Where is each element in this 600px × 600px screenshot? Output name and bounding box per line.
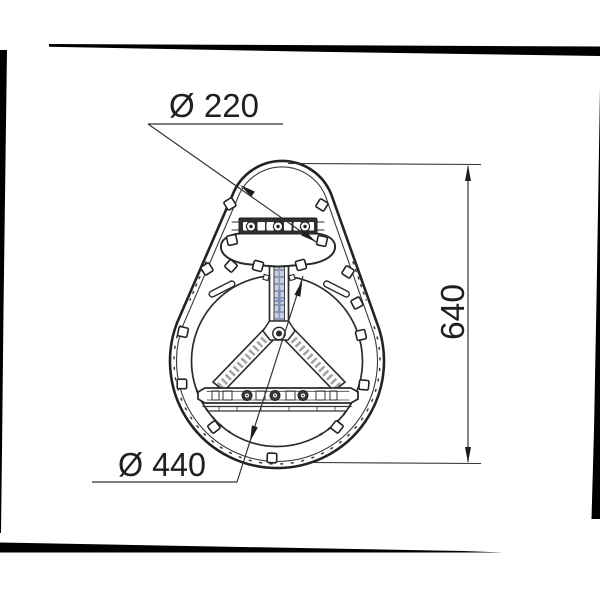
scan-artifact-bottom — [0, 543, 503, 553]
dim-440-label: Ø 440 — [118, 446, 206, 483]
stem-notch-left — [263, 274, 269, 280]
spoke-junction — [263, 321, 295, 340]
upper-crossbar — [232, 218, 324, 234]
dim-640-arrow-top — [465, 165, 471, 181]
bottom-crossbar — [198, 388, 358, 411]
stem-notch-right — [289, 274, 295, 280]
part-view — [170, 161, 384, 468]
drawing-canvas: Ø 220 Ø 440 640 — [0, 0, 600, 600]
scan-artifact-top — [49, 44, 600, 56]
dim-440-arrow-upper — [294, 281, 302, 297]
scanned-drawing-page: Ø 220 Ø 440 640 — [0, 0, 600, 600]
dim-220-leader-line — [148, 124, 316, 242]
scan-artifact-left — [0, 50, 7, 533]
dim-440-arrow-lower — [250, 425, 258, 441]
dim-640-label: 640 — [434, 284, 471, 340]
scan-artifact-right — [592, 87, 600, 519]
dimension-height: 640 — [288, 164, 481, 464]
dim-640-arrow-bottom — [465, 447, 471, 463]
dim-640-ext-bottom — [310, 463, 481, 464]
dim-220-label: Ø 220 — [169, 87, 259, 124]
scan-artifacts — [0, 44, 600, 553]
dim-640-ext-top — [288, 164, 481, 165]
bottom-bar-flange — [203, 407, 351, 412]
